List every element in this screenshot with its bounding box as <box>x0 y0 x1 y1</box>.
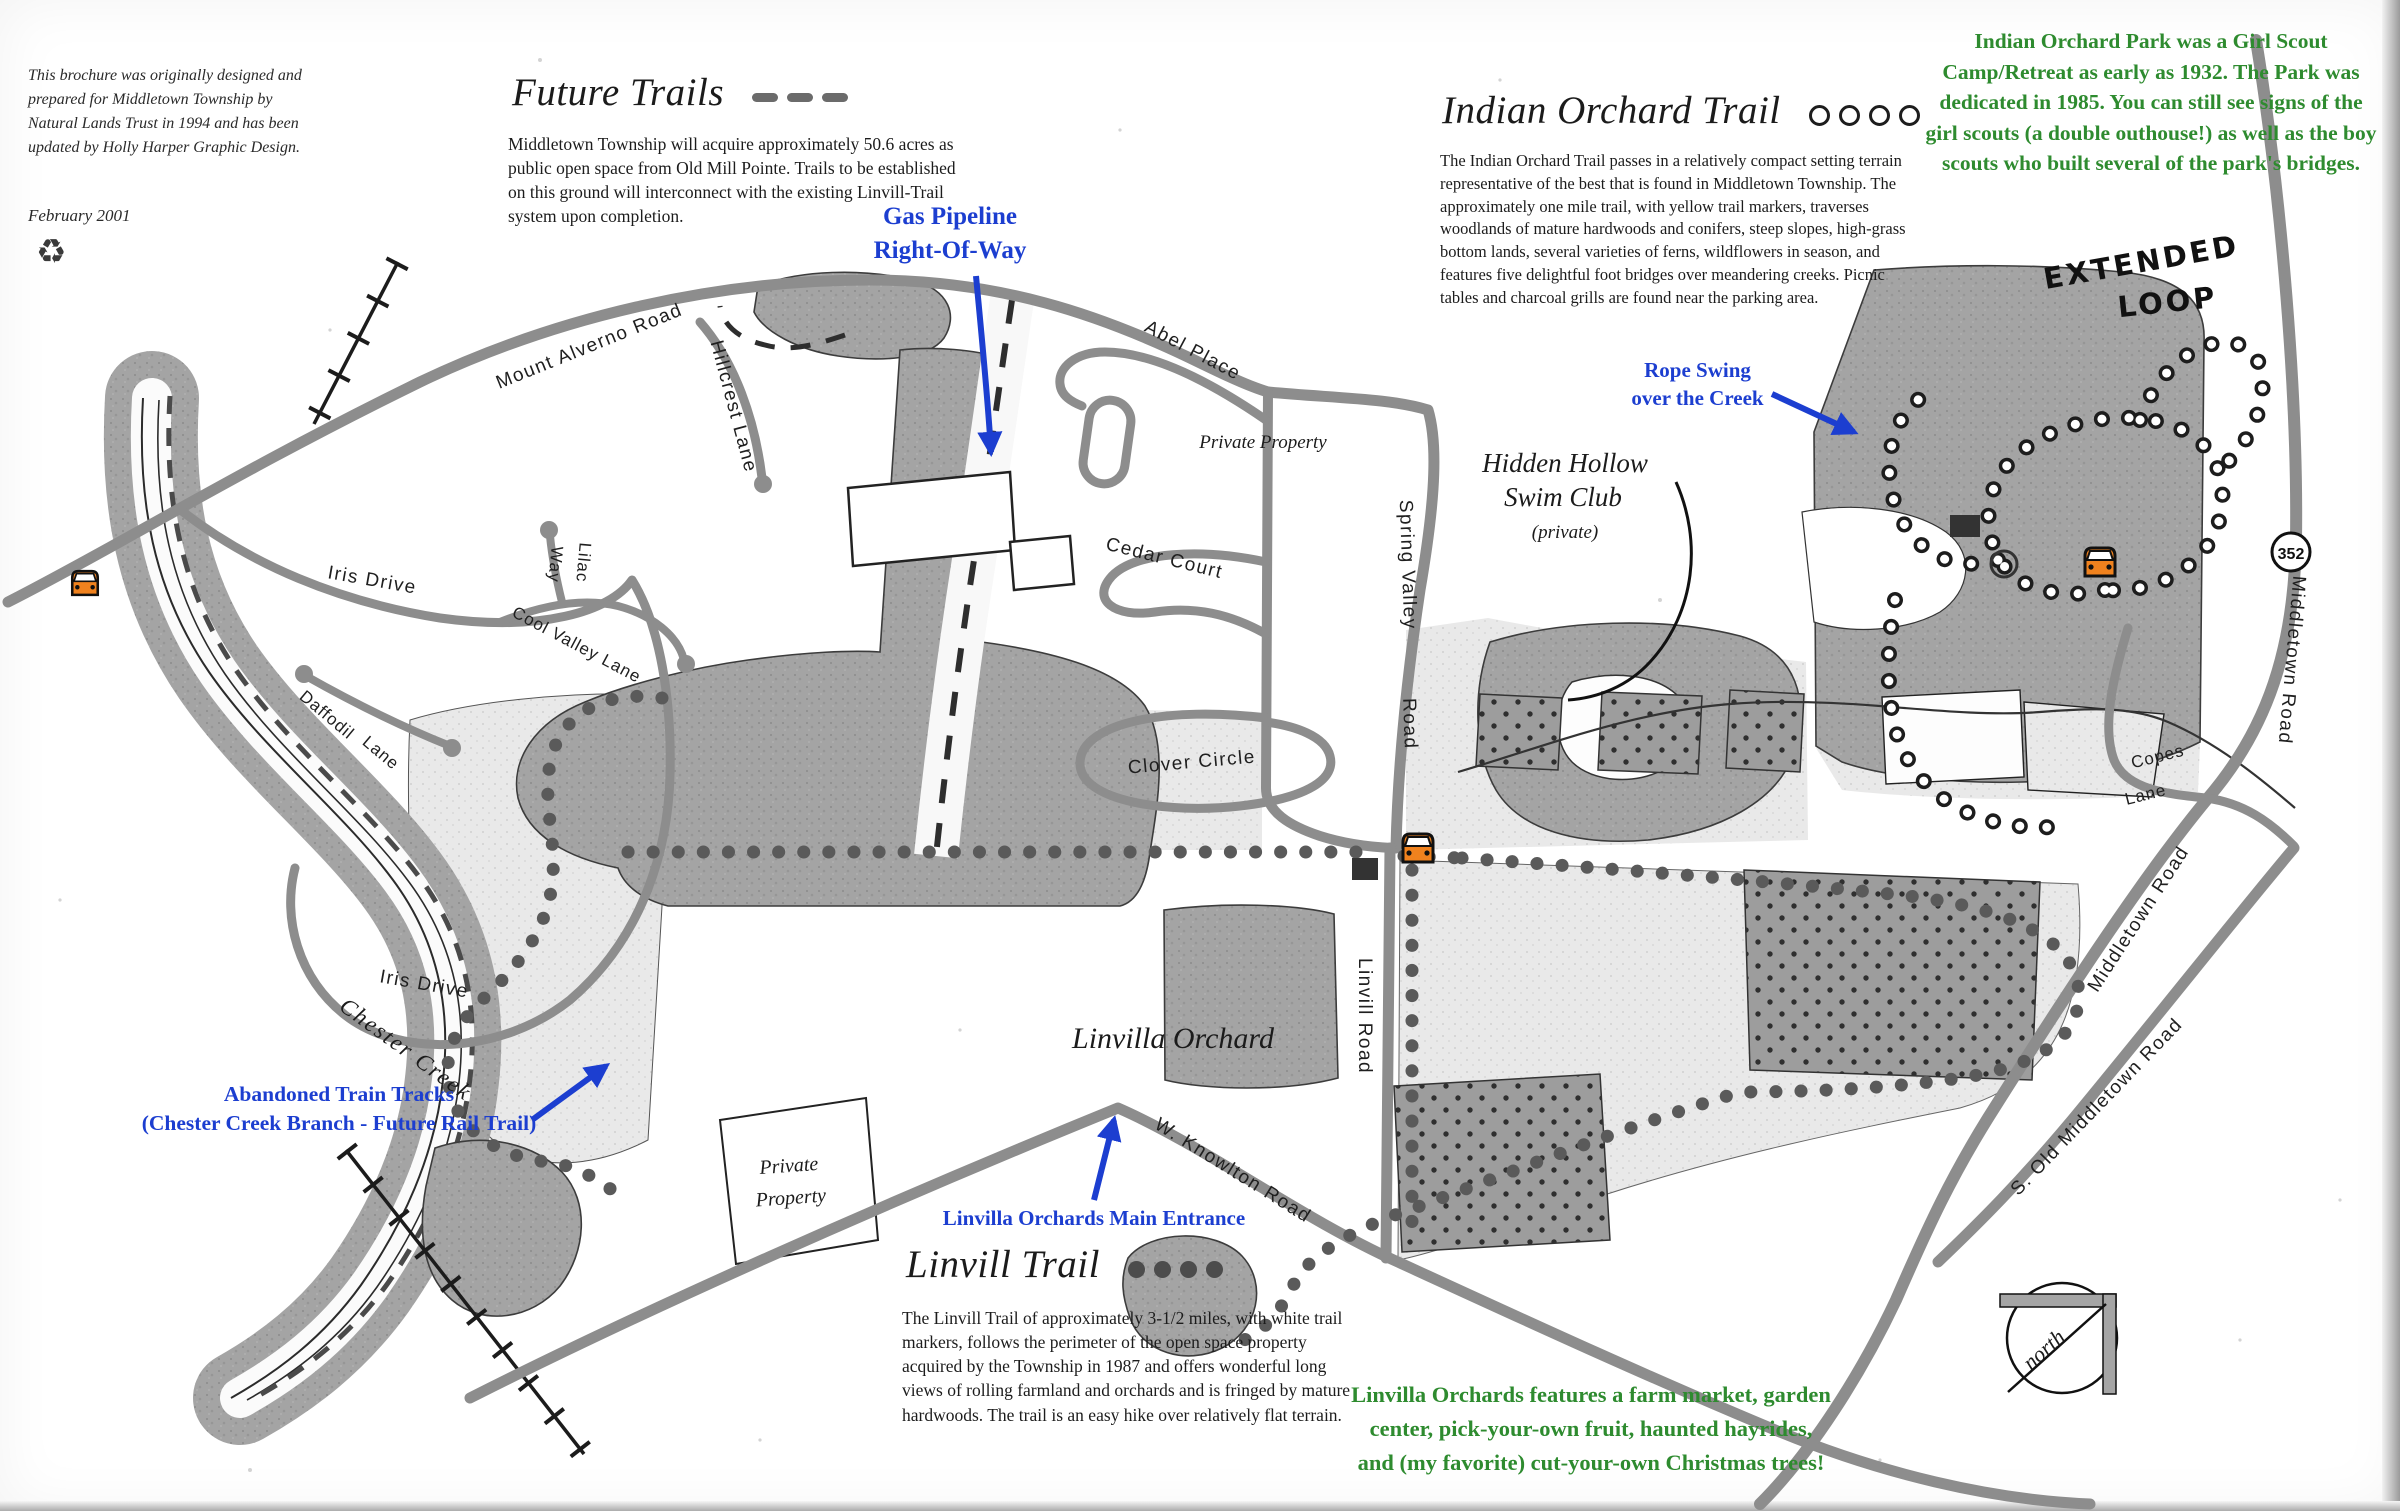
main-entrance-callout: Linvilla Orchards Main Entrance <box>926 1204 1262 1232</box>
trail-circle-icon <box>1839 105 1860 126</box>
label-hillcrest: Hillcrest Lane <box>706 338 762 475</box>
label-private-property-right: Private Property <box>1198 432 1327 453</box>
girl-scout-note: Indian Orchard Park was a Girl Scout Cam… <box>1908 26 2394 179</box>
linvill-trail-header: Linvill Trail <box>906 1242 1223 1287</box>
road-linvill <box>1386 848 1390 1258</box>
route-352-badge: 352 <box>2272 533 2310 571</box>
trail-dot-icon <box>1206 1261 1223 1278</box>
indian-orchard-legend <box>1809 105 1920 126</box>
label-daffodil-lane: Lane <box>359 732 403 773</box>
linvilla-orchards-note: Linvilla Orchards features a farm market… <box>1316 1378 1866 1479</box>
linvill-trail-legend <box>1128 1261 1223 1278</box>
trail-dot-icon <box>1128 1261 1145 1278</box>
label-middletown-lower: Middletown Road <box>2084 842 2194 995</box>
trail-circle-icon <box>1869 105 1890 126</box>
parking-car-icon <box>2085 548 2115 576</box>
main-entrance-arrow <box>1094 1120 1114 1200</box>
building-outline <box>848 472 1015 566</box>
future-trail-dash-icon <box>822 93 848 102</box>
linvill-trail-body: The Linvill Trail of approximately 3-1/2… <box>902 1306 1360 1427</box>
gas-pipeline-callout: Gas Pipeline Right-Of-Way <box>820 200 1080 268</box>
label-hidden-hollow: Hidden Hollow <box>1481 448 1648 478</box>
label-swim-club: Swim Club <box>1504 482 1622 512</box>
label-spring-valley-road: Road <box>1398 698 1421 750</box>
label-linvill-road: Linvill Road <box>1354 958 1375 1074</box>
trail-dot-icon <box>1180 1261 1197 1278</box>
building-outline-small <box>1010 536 1074 590</box>
rope-swing-callout: Rope Swing over the Creek <box>1580 356 1815 413</box>
building-square <box>1352 858 1378 880</box>
trail-dot-icon <box>1154 1261 1171 1278</box>
north-compass: north <box>2000 1283 2117 1394</box>
label-cedar: Cedar Court <box>1104 534 1226 583</box>
parking-car-icon <box>1403 834 1433 862</box>
brochure-map-page: 352 north Mount Alverno Road Hillcrest L… <box>0 0 2400 1511</box>
future-trails-title: Future Trails <box>512 70 724 115</box>
future-trails-header: Future Trails <box>512 70 848 115</box>
label-lilac-way: Way <box>544 546 566 584</box>
brochure-credit-text: This brochure was originally designed an… <box>28 64 373 160</box>
north-label: north <box>2018 1324 2070 1374</box>
trail-circle-icon <box>1809 105 1830 126</box>
label-private-left: Private <box>758 1153 819 1179</box>
future-trail-legend <box>752 93 848 102</box>
woodland-areas <box>422 266 2204 1356</box>
brochure-date: February 2001 <box>28 206 130 226</box>
parking-car-icon <box>72 571 98 595</box>
indian-orchard-body: The Indian Orchard Trail passes in a rel… <box>1440 150 1908 309</box>
park-building <box>1950 515 1980 537</box>
indian-orchard-title: Indian Orchard Trail <box>1442 88 1781 133</box>
label-lilac: Lilac <box>572 542 594 583</box>
future-trail-dash-icon <box>752 93 778 102</box>
future-trail-dash-icon <box>787 93 813 102</box>
linvill-trail-title: Linvill Trail <box>906 1242 1100 1287</box>
indian-orchard-header: Indian Orchard Trail <box>1442 88 1920 133</box>
route-352-label: 352 <box>2278 546 2305 563</box>
label-spring-valley: Spring Valley <box>1395 499 1421 630</box>
label-private-swim: (private) <box>1532 522 1598 543</box>
recycle-icon: ♻ <box>36 236 66 270</box>
label-linvilla-orchard: Linvilla Orchard <box>1071 1022 1275 1055</box>
abandoned-tracks-callout: Abandoned Train Tracks (Chester Creek Br… <box>110 1080 568 1138</box>
